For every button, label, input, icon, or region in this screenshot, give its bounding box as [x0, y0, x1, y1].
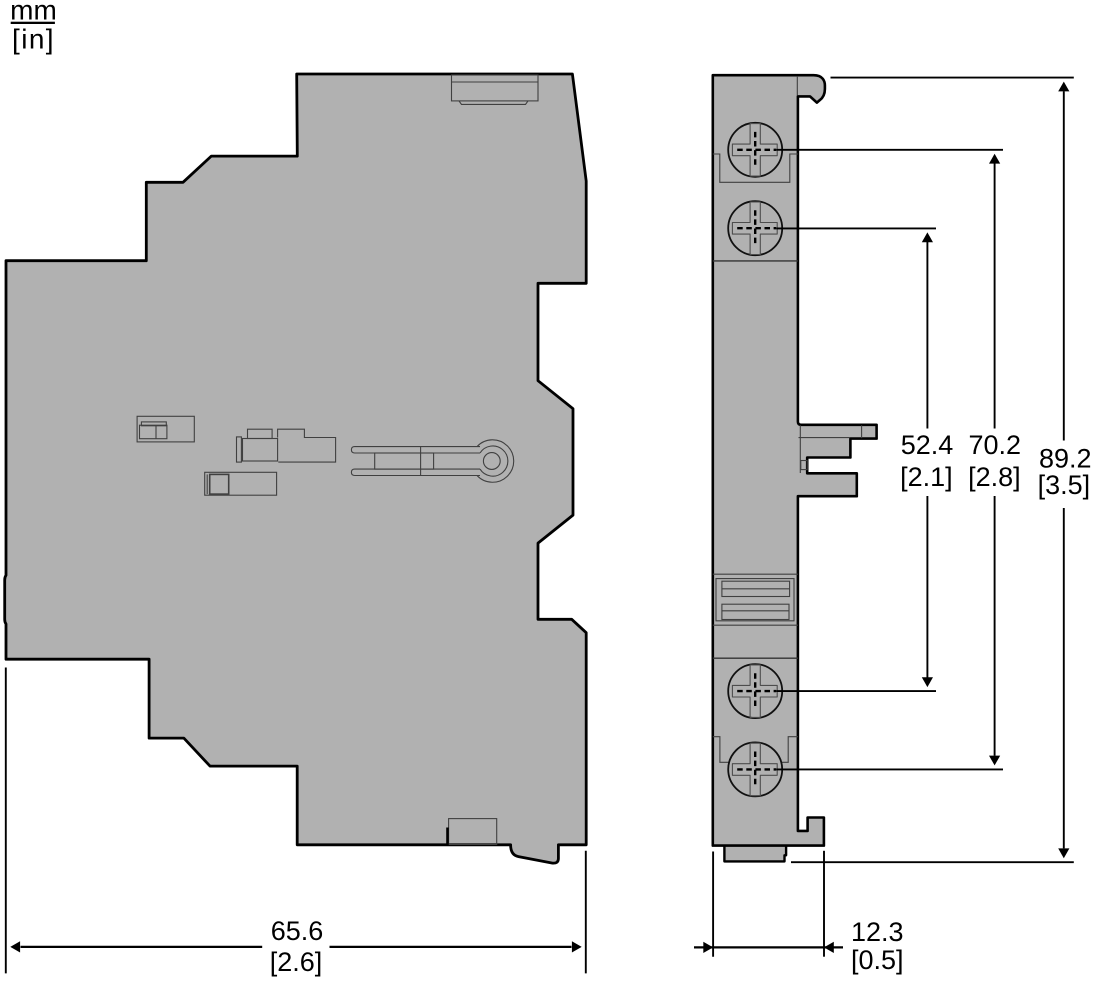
svg-text:[0.5]: [0.5] — [851, 945, 904, 975]
svg-text:70.2: 70.2 — [969, 430, 1022, 460]
svg-text:[2.6]: [2.6] — [270, 947, 323, 977]
svg-text:52.4: 52.4 — [901, 430, 954, 460]
svg-text:mm: mm — [10, 0, 57, 25]
svg-text:[2.8]: [2.8] — [968, 462, 1021, 492]
svg-text:[3.5]: [3.5] — [1038, 470, 1091, 500]
svg-text:89.2: 89.2 — [1039, 444, 1092, 474]
svg-text:[in]: [in] — [12, 24, 55, 55]
svg-text:65.6: 65.6 — [271, 916, 324, 946]
svg-text:12.3: 12.3 — [851, 917, 904, 947]
svg-text:[2.1]: [2.1] — [900, 462, 953, 492]
